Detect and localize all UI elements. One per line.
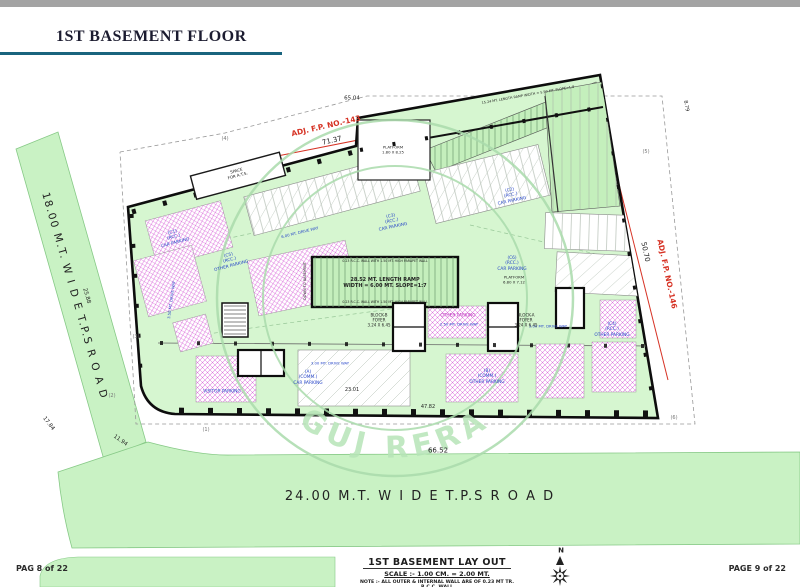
page-number-right: PAGE 9 of 22 xyxy=(729,564,786,573)
drawing-page: 1ST BASEMENT FLOOR xyxy=(0,0,800,587)
central-ramp xyxy=(312,257,458,307)
road-bottom-strip xyxy=(40,557,335,587)
platform-box xyxy=(358,120,430,180)
page-number-left: PAG 8 of 22 xyxy=(16,564,68,573)
title-block: 1ST BASEMENT LAY OUT SCALE :- 1.00 CM. =… xyxy=(352,550,522,587)
north-compass-icon xyxy=(550,556,570,586)
floor-plan-drawing: GUJ RERA xyxy=(0,0,800,587)
tps-road-left xyxy=(16,132,146,460)
layout-scale: SCALE :- 1.00 CM. = 2.00 MT. xyxy=(352,570,522,578)
layout-title: 1ST BASEMENT LAY OUT xyxy=(363,557,511,569)
stair-core xyxy=(222,303,248,337)
layout-note: NOTE :- ALL OUTER & INTERNAL WALL ARE OF… xyxy=(352,580,522,587)
